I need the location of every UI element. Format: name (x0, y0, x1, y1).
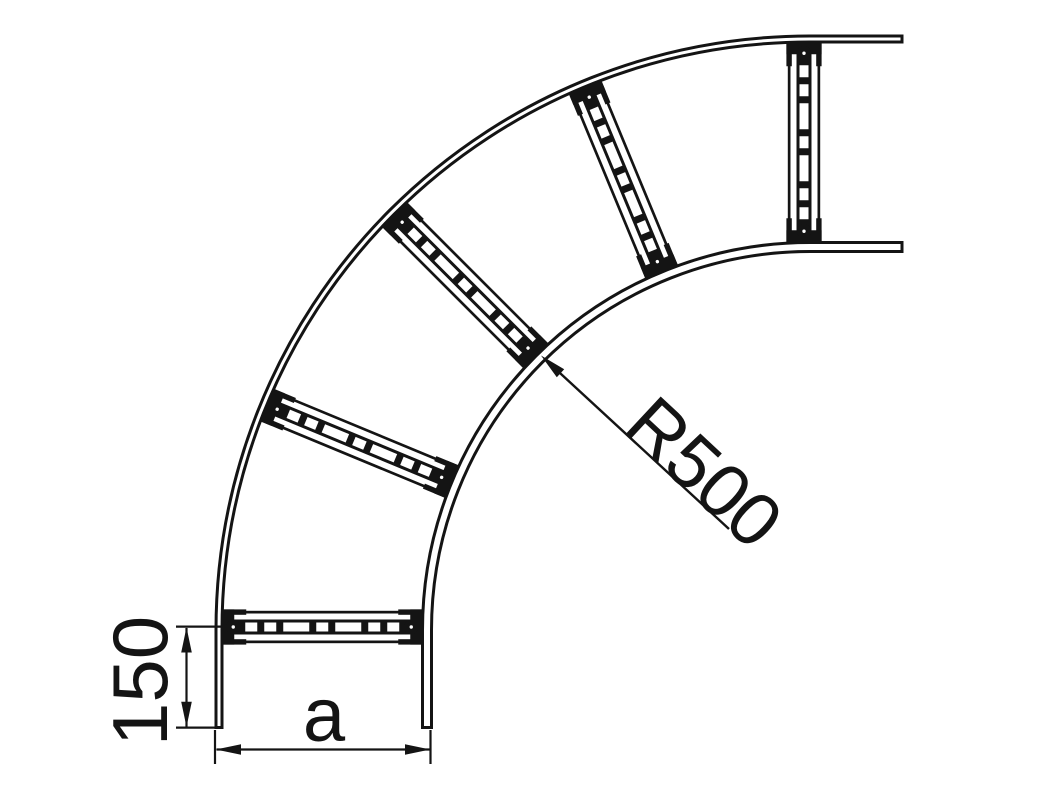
ladder-rung (569, 80, 678, 279)
ladder-rung (260, 389, 459, 498)
cable-ladder-bend-drawing: 150 a R500 (0, 0, 1038, 812)
ladder-rung (222, 609, 423, 644)
dimension-a: a (215, 673, 431, 764)
technical-drawing-page: 150 a R500 (0, 0, 1038, 812)
ladder-rung (382, 202, 549, 369)
dimension-a-label: a (303, 673, 346, 758)
dimension-arrowhead-left-icon (216, 744, 241, 755)
dimension-r500-label: R500 (610, 380, 798, 564)
dimension-150-label: 150 (96, 616, 184, 746)
dimension-r500: R500 (541, 356, 799, 564)
dimension-arrowhead-right-icon (405, 744, 430, 755)
dimension-150: 150 (96, 616, 223, 746)
ladder-rung (786, 42, 821, 243)
